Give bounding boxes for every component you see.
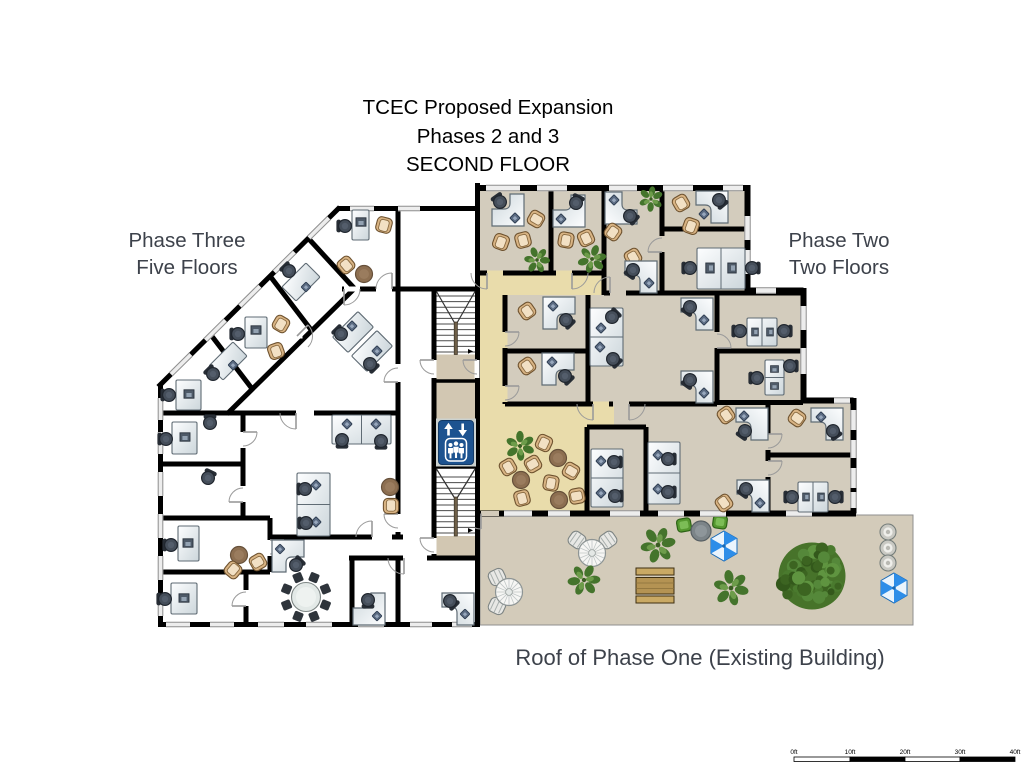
svg-text:10ft: 10ft — [845, 749, 856, 756]
svg-text:30ft: 30ft — [955, 749, 966, 756]
svg-text:Roof of Phase One (Existing Bu: Roof of Phase One (Existing Building) — [515, 645, 884, 670]
svg-text:Five Floors: Five Floors — [136, 256, 237, 279]
svg-text:TCEC Proposed Expansion: TCEC Proposed Expansion — [363, 96, 614, 119]
svg-text:20ft: 20ft — [900, 749, 911, 756]
svg-text:Two Floors: Two Floors — [789, 256, 889, 279]
svg-text:Phase Three: Phase Three — [128, 229, 245, 252]
svg-text:Phases 2 and 3: Phases 2 and 3 — [417, 125, 559, 148]
svg-text:40ft: 40ft — [1010, 749, 1021, 756]
svg-text:Phase Two: Phase Two — [788, 229, 889, 252]
svg-text:SECOND FLOOR: SECOND FLOOR — [406, 153, 570, 176]
svg-text:0ft: 0ft — [790, 749, 797, 756]
